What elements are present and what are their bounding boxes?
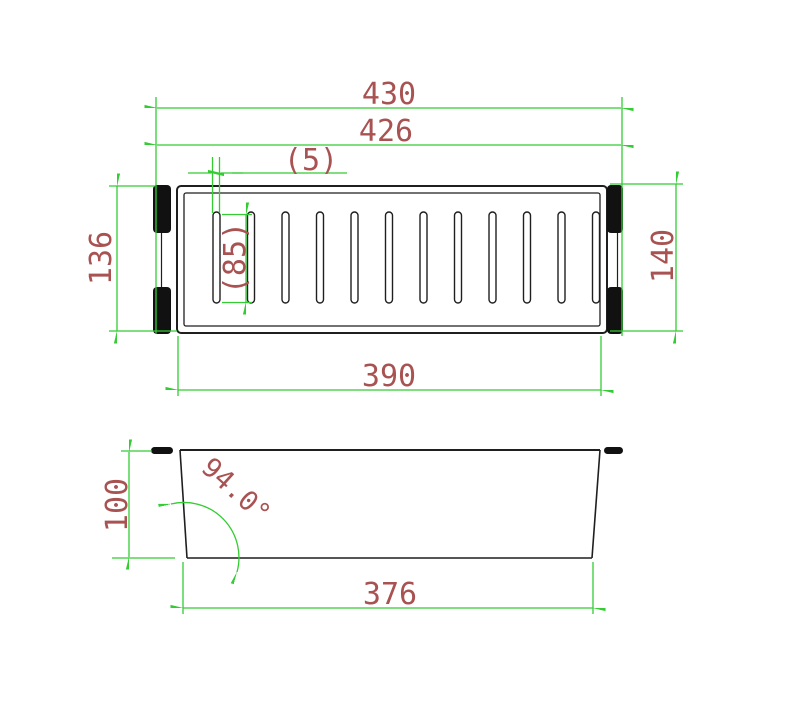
dim-height-label: 100 — [100, 478, 135, 532]
drain-slot — [455, 212, 462, 303]
dim-angle-label: 94.0° — [195, 452, 276, 529]
dim-left-height-label: 136 — [84, 231, 119, 285]
dim-overall-width-label: 430 — [362, 77, 416, 112]
dim-slot-length-label: (85) — [218, 222, 253, 294]
vessel-left-wall — [180, 450, 187, 558]
technical-drawing: 430 426 (5) (85) 136 140 390 — [0, 0, 800, 704]
drain-slot — [489, 212, 496, 303]
drain-slot — [317, 212, 324, 303]
drain-slot — [282, 212, 289, 303]
drain-slot — [420, 212, 427, 303]
handle-tab-right — [604, 447, 623, 454]
dim-body-width-label: 426 — [359, 114, 413, 149]
handle-grip-top-right — [607, 185, 623, 233]
drain-slot — [351, 212, 358, 303]
technical-drawing-canvas: 430 426 (5) (85) 136 140 390 — [0, 0, 800, 704]
dim-slot-width-label: (5) — [284, 143, 338, 178]
handle-tab-left — [151, 447, 173, 454]
drain-slot — [593, 212, 600, 303]
drain-slot — [386, 212, 393, 303]
dim-base-width-label: 376 — [363, 577, 417, 612]
drain-slots — [213, 212, 600, 303]
vessel-right-wall — [592, 450, 600, 558]
drain-slot — [558, 212, 565, 303]
handle-grip-bottom-right — [607, 287, 623, 334]
dim-bottom-width-label: 390 — [362, 359, 416, 394]
dim-right-height-label: 140 — [646, 229, 681, 283]
side-view-dimensions: 100 94.0° 376 — [100, 451, 593, 614]
dim-angle-arc — [171, 502, 239, 572]
drain-slot — [524, 212, 531, 303]
